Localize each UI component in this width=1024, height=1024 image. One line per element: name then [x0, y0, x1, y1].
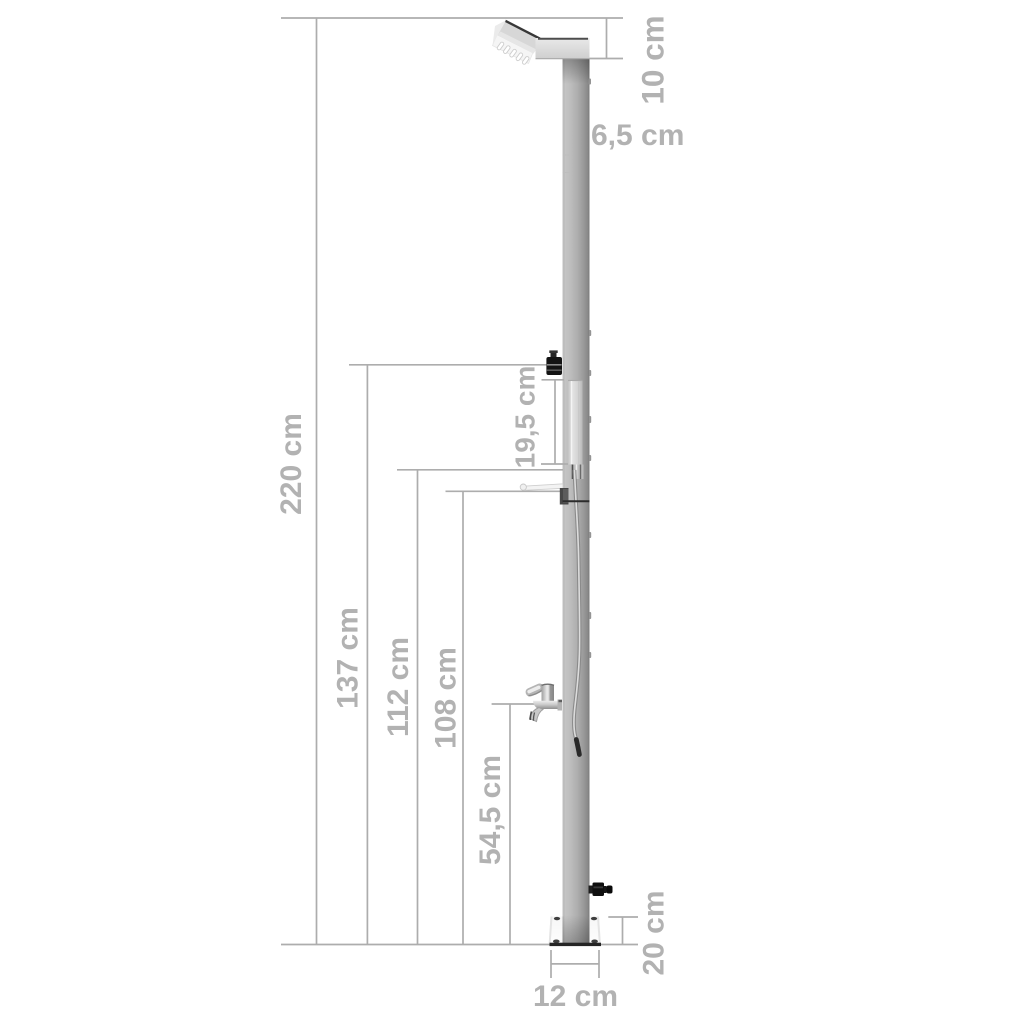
svg-text:54,5 cm: 54,5 cm: [474, 755, 507, 865]
svg-text:220 cm: 220 cm: [275, 413, 308, 515]
svg-text:108 cm: 108 cm: [430, 647, 463, 749]
svg-text:112 cm: 112 cm: [382, 637, 415, 737]
svg-text:20 cm: 20 cm: [638, 890, 671, 975]
svg-text:10 cm: 10 cm: [635, 15, 671, 104]
svg-text:137 cm: 137 cm: [332, 607, 365, 709]
svg-text:12 cm: 12 cm: [533, 980, 618, 1013]
svg-text:19,5 cm: 19,5 cm: [510, 366, 541, 469]
svg-text:6,5 cm: 6,5 cm: [591, 119, 684, 152]
